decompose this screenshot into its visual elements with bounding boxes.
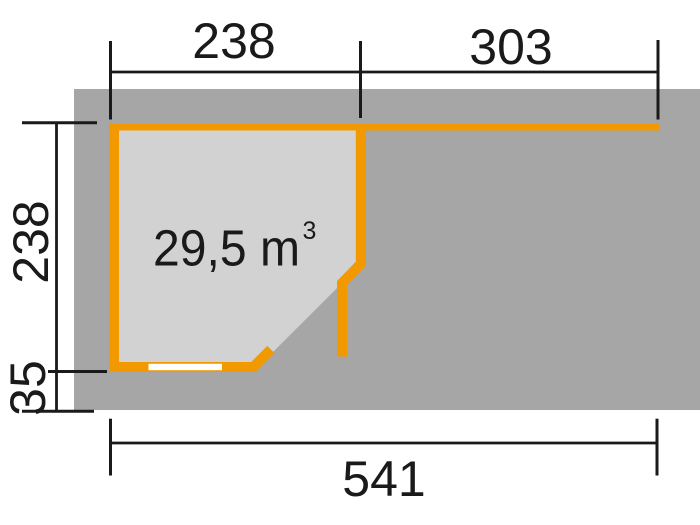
svg-text:35: 35 [0,360,56,416]
svg-text:238: 238 [192,13,275,69]
svg-text:303: 303 [469,19,552,75]
svg-text:3: 3 [303,217,317,245]
svg-text:238: 238 [3,200,59,283]
svg-text:541: 541 [342,451,425,507]
svg-text:29,5 m: 29,5 m [153,220,300,277]
